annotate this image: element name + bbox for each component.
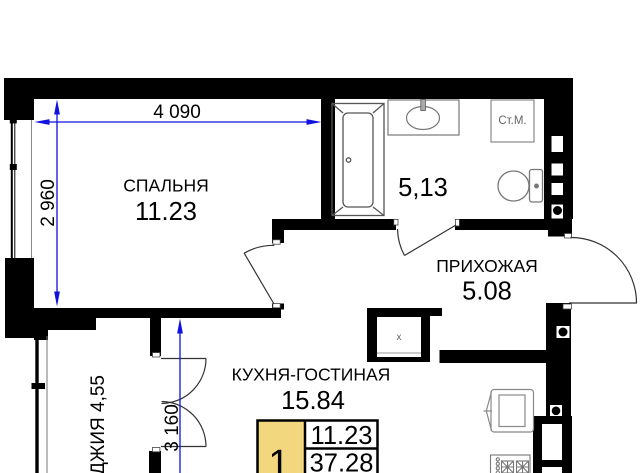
svg-text:x: x — [397, 332, 402, 343]
svg-text:ПРИХОЖАЯ: ПРИХОЖАЯ — [436, 256, 538, 276]
svg-text:11.23: 11.23 — [311, 422, 373, 450]
svg-text:КУХНЯ-ГОСТИНАЯ: КУХНЯ-ГОСТИНАЯ — [232, 365, 391, 385]
svg-text:15.84: 15.84 — [281, 387, 345, 415]
svg-text:5.08: 5.08 — [462, 278, 512, 306]
svg-text:4 090: 4 090 — [153, 102, 201, 123]
svg-text:2 960: 2 960 — [38, 179, 59, 227]
svg-text:1: 1 — [268, 443, 289, 473]
svg-text:Ст.М.: Ст.М. — [498, 115, 526, 127]
svg-text:3 160: 3 160 — [162, 404, 183, 452]
svg-text:11.23: 11.23 — [135, 198, 197, 226]
svg-text:5,13: 5,13 — [398, 174, 448, 202]
svg-text:СПАЛЬНЯ: СПАЛЬНЯ — [123, 176, 209, 196]
svg-text:ЛОДЖИЯ 4,55: ЛОДЖИЯ 4,55 — [88, 375, 109, 473]
svg-text:37.28: 37.28 — [310, 450, 374, 473]
